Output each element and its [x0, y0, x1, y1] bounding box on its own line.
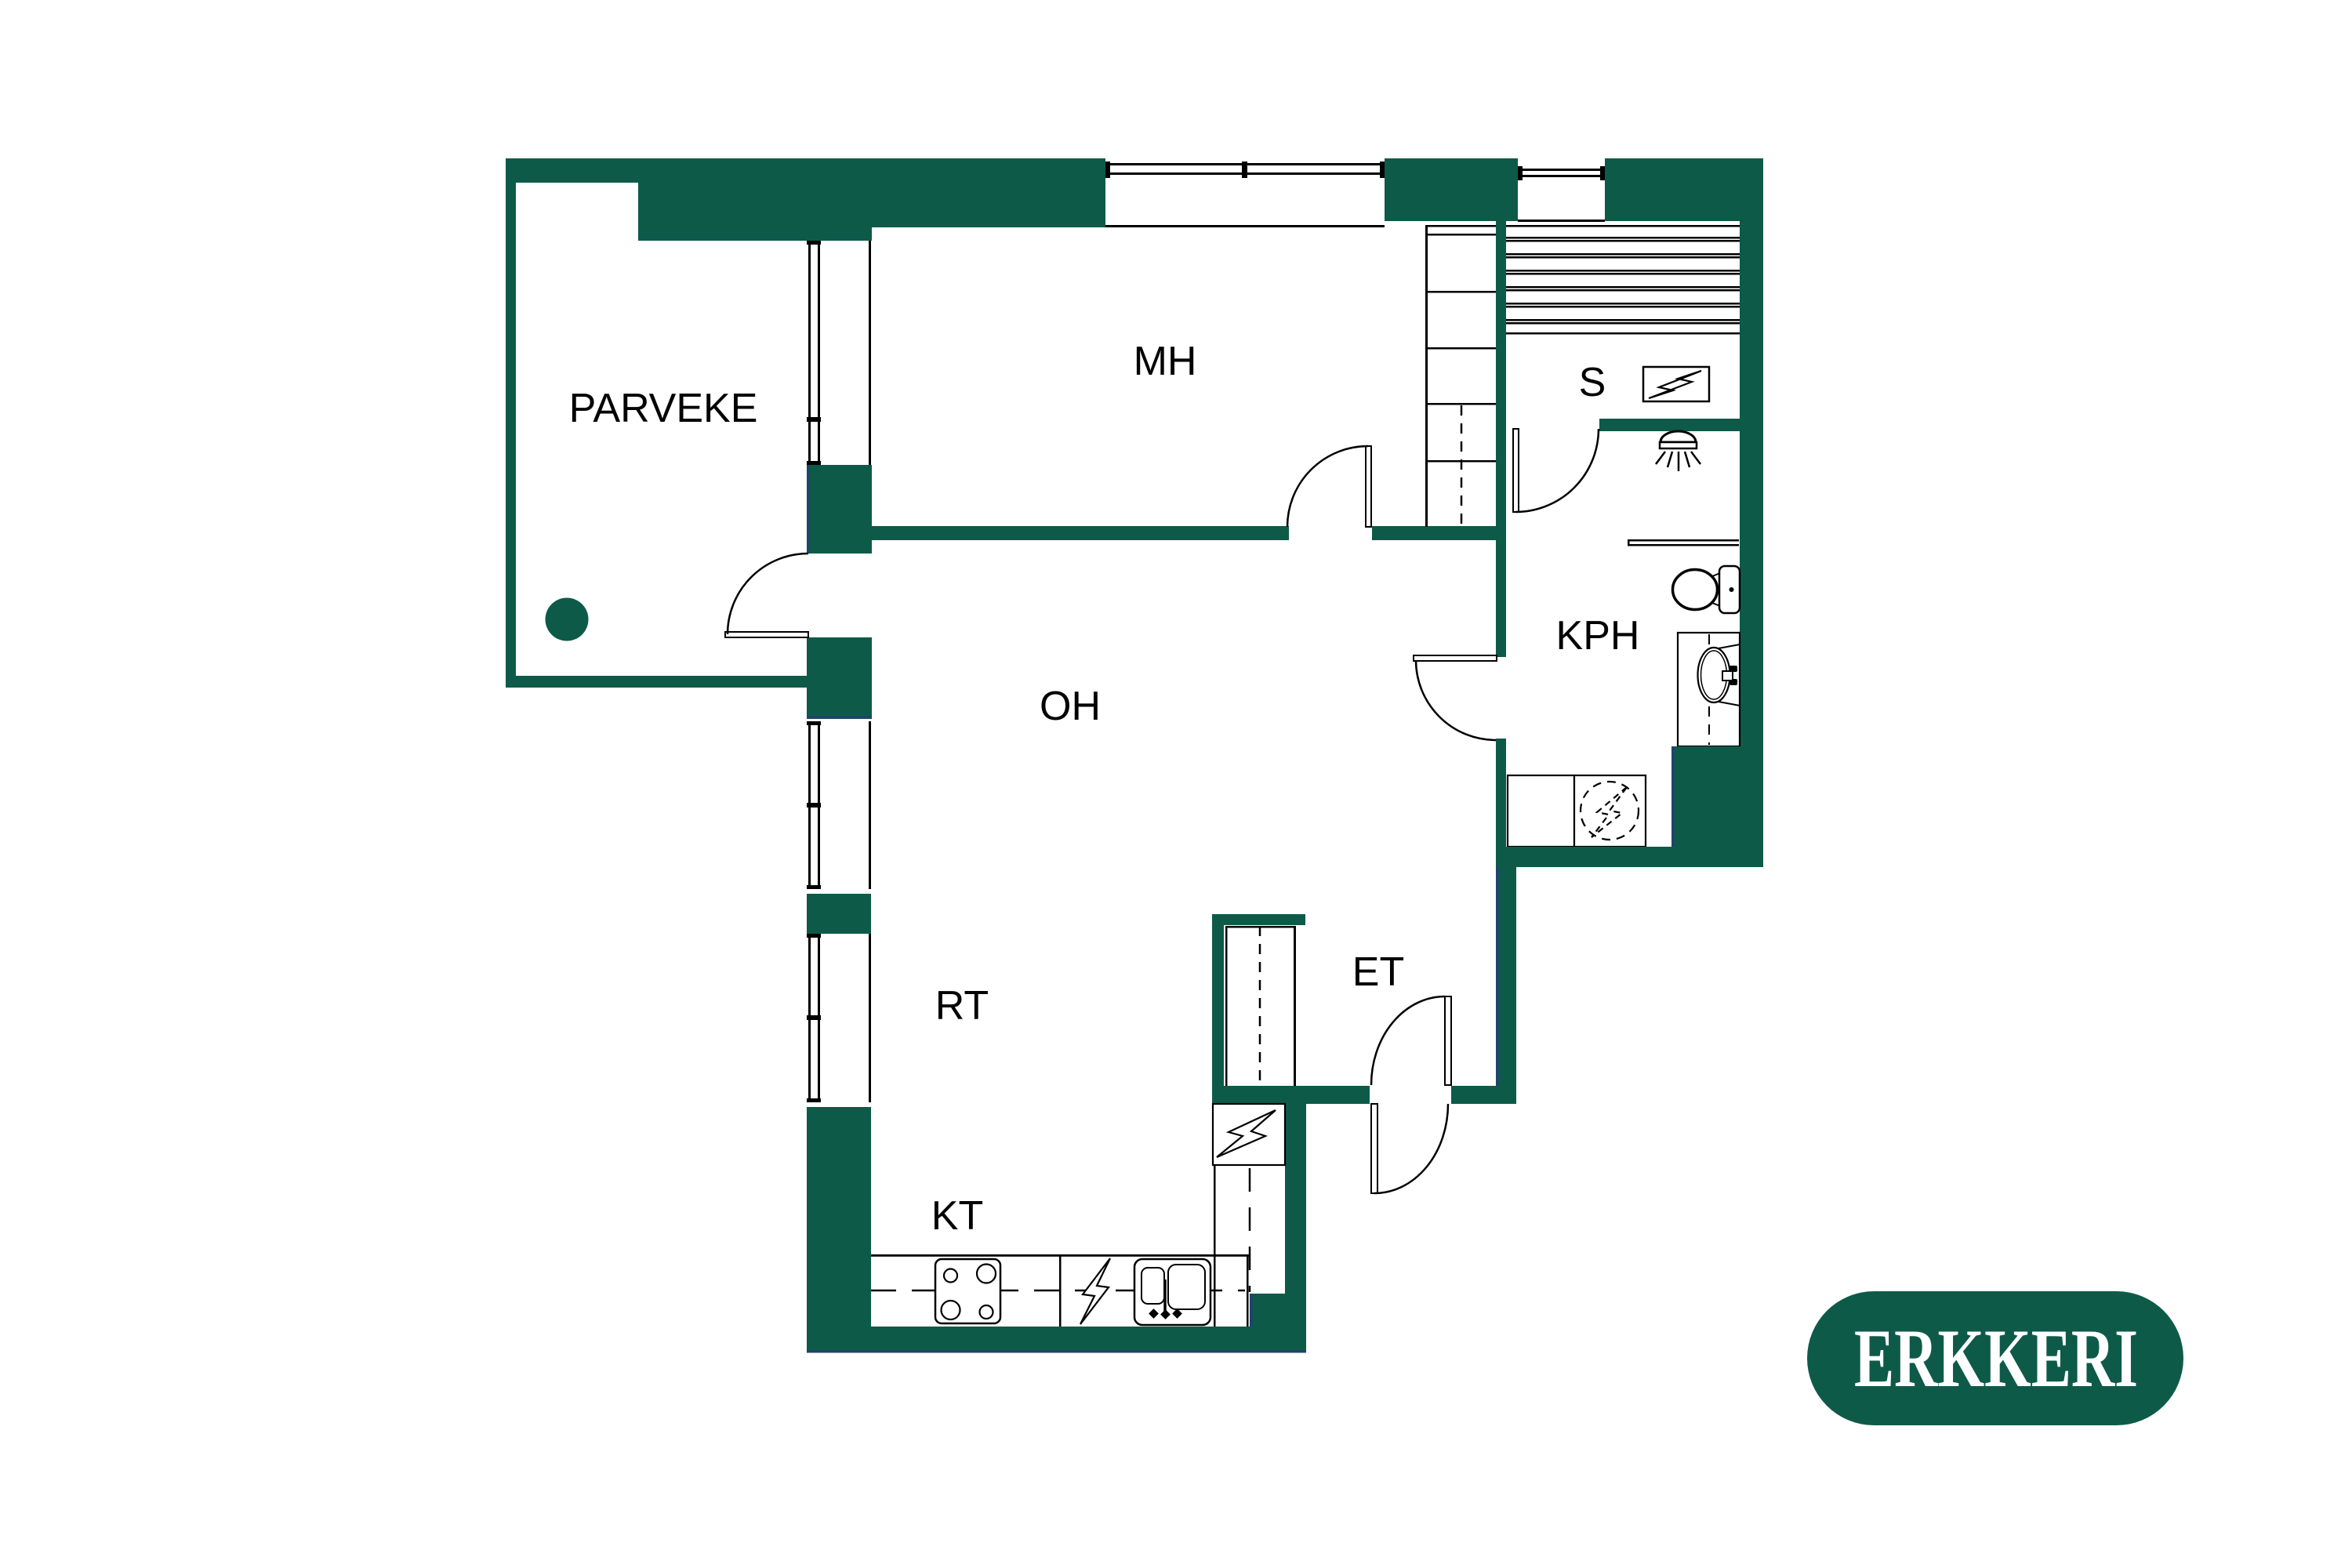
- svg-text:OH: OH: [1040, 684, 1101, 729]
- svg-text:KPH: KPH: [1556, 613, 1640, 659]
- svg-text:KT: KT: [931, 1193, 983, 1239]
- svg-text:ERKKERI: ERKKERI: [1854, 1312, 2138, 1404]
- svg-text:PARVEKE: PARVEKE: [569, 386, 758, 431]
- svg-text:ET: ET: [1352, 949, 1404, 995]
- svg-text:S: S: [1579, 360, 1606, 405]
- svg-text:RT: RT: [935, 983, 989, 1029]
- svg-text:MH: MH: [1134, 339, 1197, 384]
